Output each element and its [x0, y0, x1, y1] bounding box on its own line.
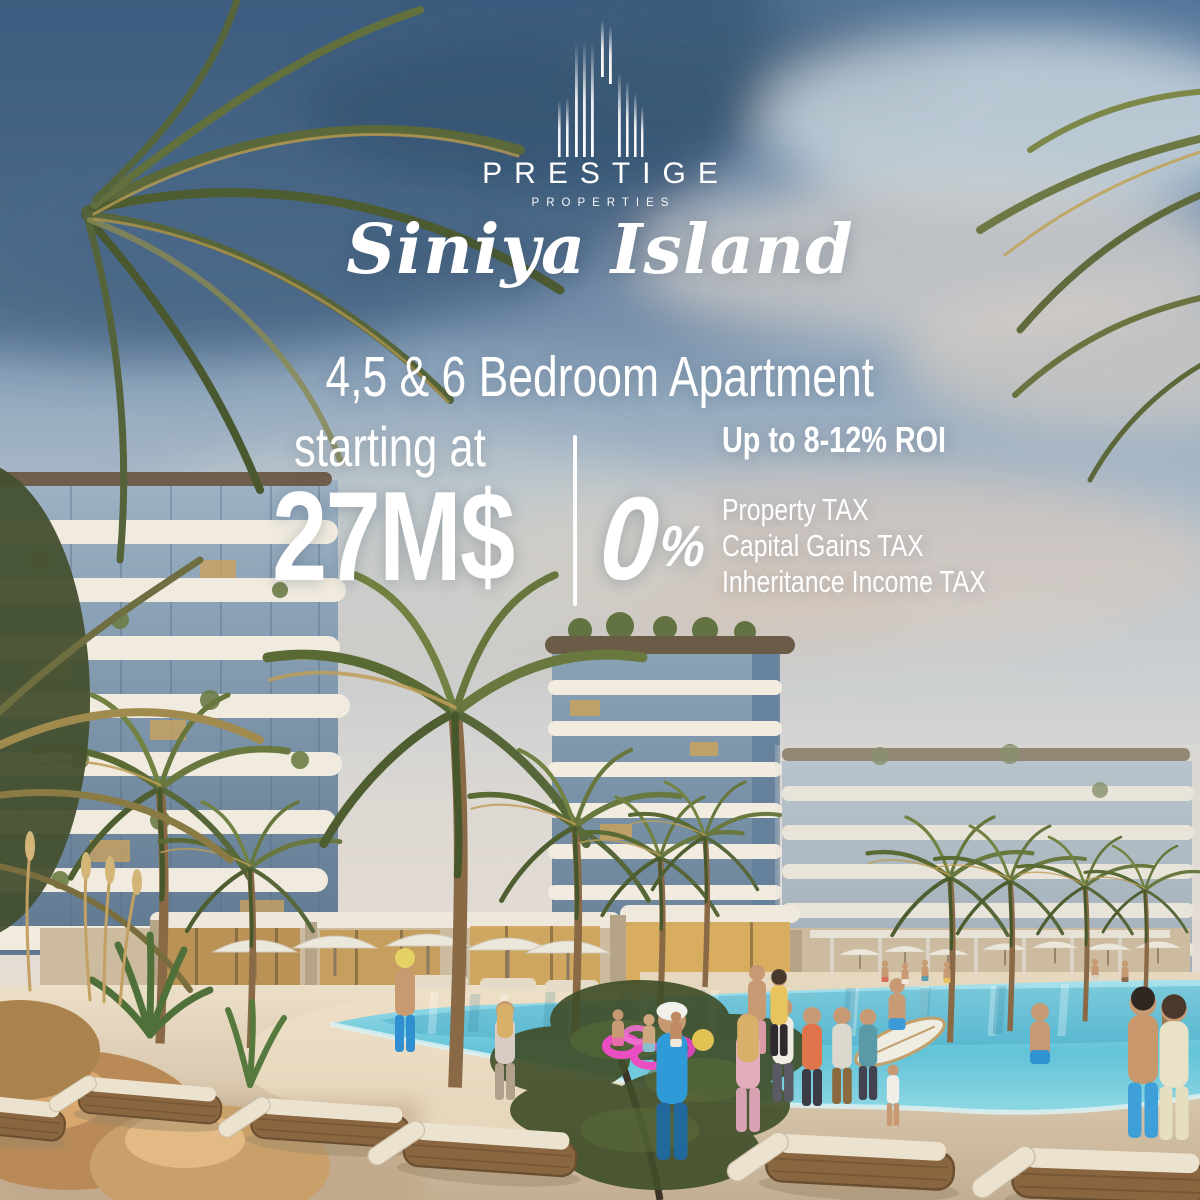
tax-item: Inheritance Income TAX: [722, 564, 1052, 600]
vertical-divider: [573, 435, 577, 606]
brand-name: PRESTIGE: [0, 157, 1200, 191]
tax-item: Property TAX: [722, 492, 1052, 528]
zero-unit: %: [658, 514, 707, 579]
tax-list: Property TAX Capital Gains TAX Inheritan…: [722, 492, 1052, 600]
brand-tagline: PROPERTIES: [0, 197, 1200, 209]
tax-item: Capital Gains TAX: [722, 528, 1052, 564]
prestige-logo-icon: [556, 18, 646, 160]
roi-text: Up to 8-12% ROI: [722, 419, 1002, 461]
project-name: Siniya Island: [0, 210, 1200, 290]
zero-percent: 0%: [597, 480, 709, 598]
zero-value: 0: [597, 473, 663, 605]
offer-headline-text: 4,5 & 6 Bedroom Apartment: [326, 344, 875, 410]
property-ad-poster: PRESTIGE PROPERTIES Siniya Island 4,5 & …: [0, 0, 1200, 1200]
price-block: starting at 27M$: [238, 418, 542, 600]
price-value: 27M$: [238, 473, 542, 600]
offer-headline: 4,5 & 6 Bedroom Apartment: [0, 344, 1200, 410]
